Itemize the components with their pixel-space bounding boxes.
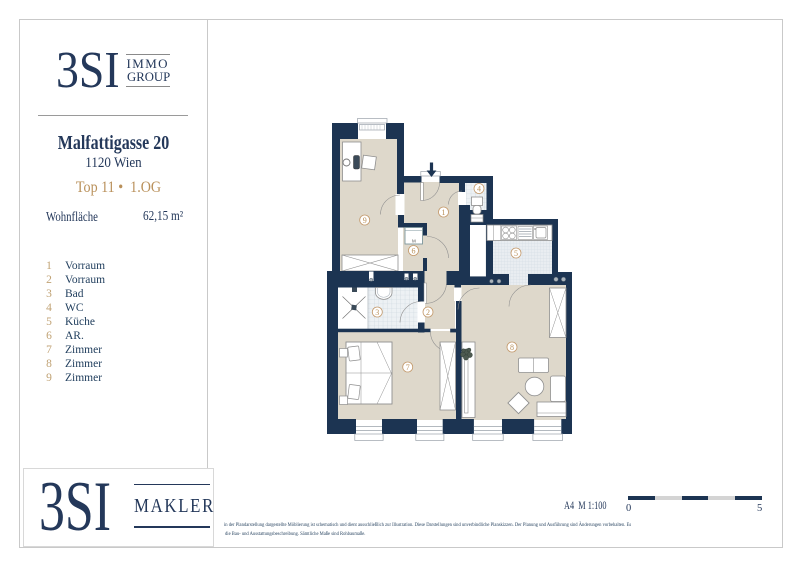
svg-text:6: 6 (412, 246, 416, 255)
svg-text:8: 8 (510, 343, 514, 352)
svg-text:2: 2 (426, 308, 430, 317)
svg-text:9: 9 (363, 216, 367, 225)
svg-text:1: 1 (442, 208, 446, 217)
svg-text:4: 4 (477, 184, 481, 193)
svg-text:5: 5 (514, 249, 518, 258)
svg-text:3: 3 (375, 308, 379, 317)
svg-text:7: 7 (406, 363, 410, 372)
svg-text:M: M (412, 239, 416, 244)
